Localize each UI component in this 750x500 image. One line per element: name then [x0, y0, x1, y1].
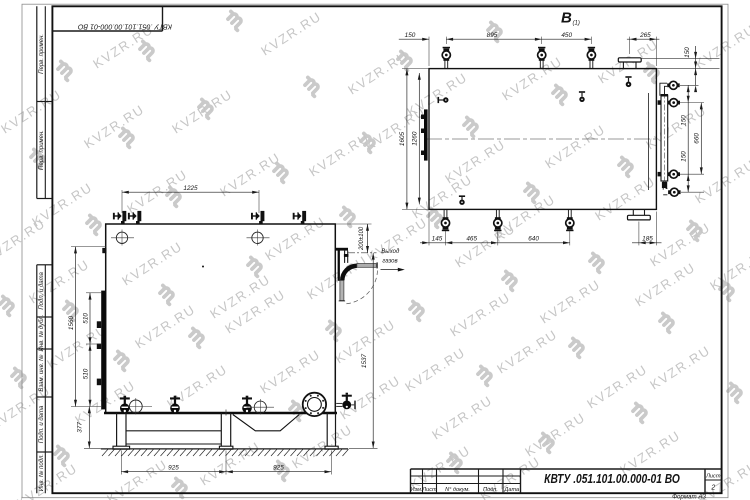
svg-text:Инв. № подл.: Инв. № подл.: [38, 454, 45, 491]
svg-text:200±100: 200±100: [359, 226, 365, 251]
svg-text:925: 925: [168, 464, 179, 471]
svg-text:510: 510: [82, 313, 89, 324]
svg-text:150: 150: [680, 115, 687, 126]
svg-text:150: 150: [684, 47, 691, 58]
svg-text:640: 640: [528, 235, 539, 242]
svg-text:КВТУ .051.101.00.000-01 ВО: КВТУ .051.101.00.000-01 ВО: [78, 23, 173, 32]
svg-text:660: 660: [694, 133, 701, 144]
svg-text:510: 510: [82, 368, 89, 379]
svg-text:450: 450: [561, 32, 572, 39]
svg-text:Лист: Лист: [705, 474, 721, 480]
svg-text:1537: 1537: [361, 353, 368, 368]
svg-text:925: 925: [273, 464, 284, 471]
svg-text:В: В: [561, 10, 572, 27]
svg-text:Подп. и дата: Подп. и дата: [39, 405, 45, 443]
svg-text:185: 185: [642, 235, 653, 242]
svg-text:465: 465: [466, 235, 477, 242]
svg-text:Дата: Дата: [503, 487, 519, 493]
svg-text:газов: газов: [382, 259, 397, 265]
svg-text:377: 377: [77, 422, 84, 433]
svg-text:КВТУ .051.101.00.000-01 ВО: КВТУ .051.101.00.000-01 ВО: [544, 473, 680, 486]
svg-text:1260: 1260: [412, 131, 419, 146]
svg-text:895: 895: [487, 32, 498, 39]
svg-text:Лист: Лист: [421, 487, 437, 493]
svg-text:Перв. примен.: Перв. примен.: [39, 34, 45, 74]
svg-text:Изм.: Изм.: [411, 487, 423, 493]
svg-text:Взам. инв. №: Взам. инв. №: [38, 354, 45, 392]
svg-text:Подп. и дата: Подп. и дата: [39, 271, 45, 309]
svg-text:Подп.: Подп.: [483, 487, 498, 493]
svg-text:265: 265: [639, 32, 651, 39]
svg-text:1560: 1560: [68, 315, 75, 330]
svg-text:(1): (1): [573, 21, 580, 27]
svg-text:Перв. примен.: Перв. примен.: [39, 130, 45, 170]
svg-text:Формат А3: Формат А3: [672, 494, 706, 500]
svg-text:Инв. № дубл.: Инв. № дубл.: [38, 315, 45, 352]
svg-text:1225: 1225: [183, 185, 198, 192]
svg-text:150: 150: [680, 151, 687, 162]
svg-text:150: 150: [405, 32, 416, 39]
svg-text:1605: 1605: [399, 131, 406, 146]
svg-text:N° докум.: N° докум.: [445, 487, 470, 493]
svg-text:Выход: Выход: [381, 249, 400, 255]
svg-text:145: 145: [432, 235, 443, 242]
svg-text:2: 2: [710, 485, 715, 492]
